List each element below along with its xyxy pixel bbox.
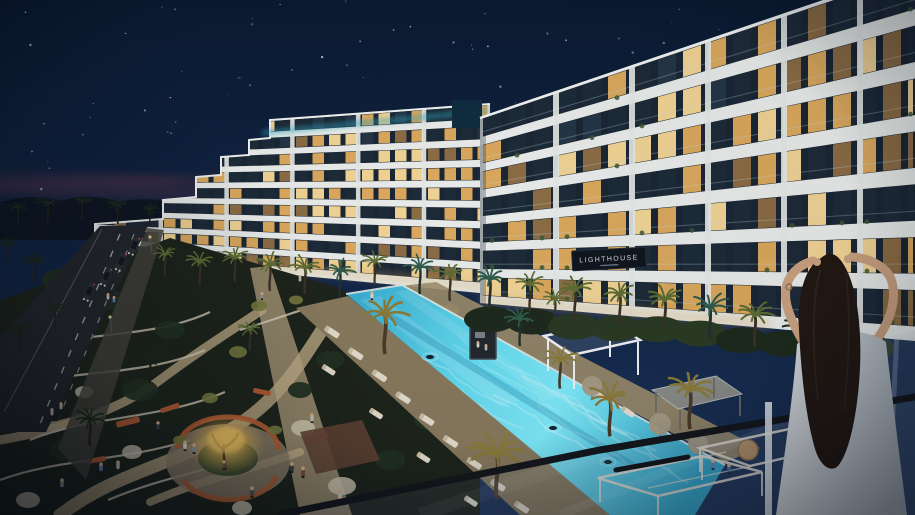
- render-canvas: LIGHTHOUSE: [0, 0, 915, 515]
- vignette: [0, 0, 915, 515]
- night-render-viewport: LIGHTHOUSE: [0, 0, 915, 515]
